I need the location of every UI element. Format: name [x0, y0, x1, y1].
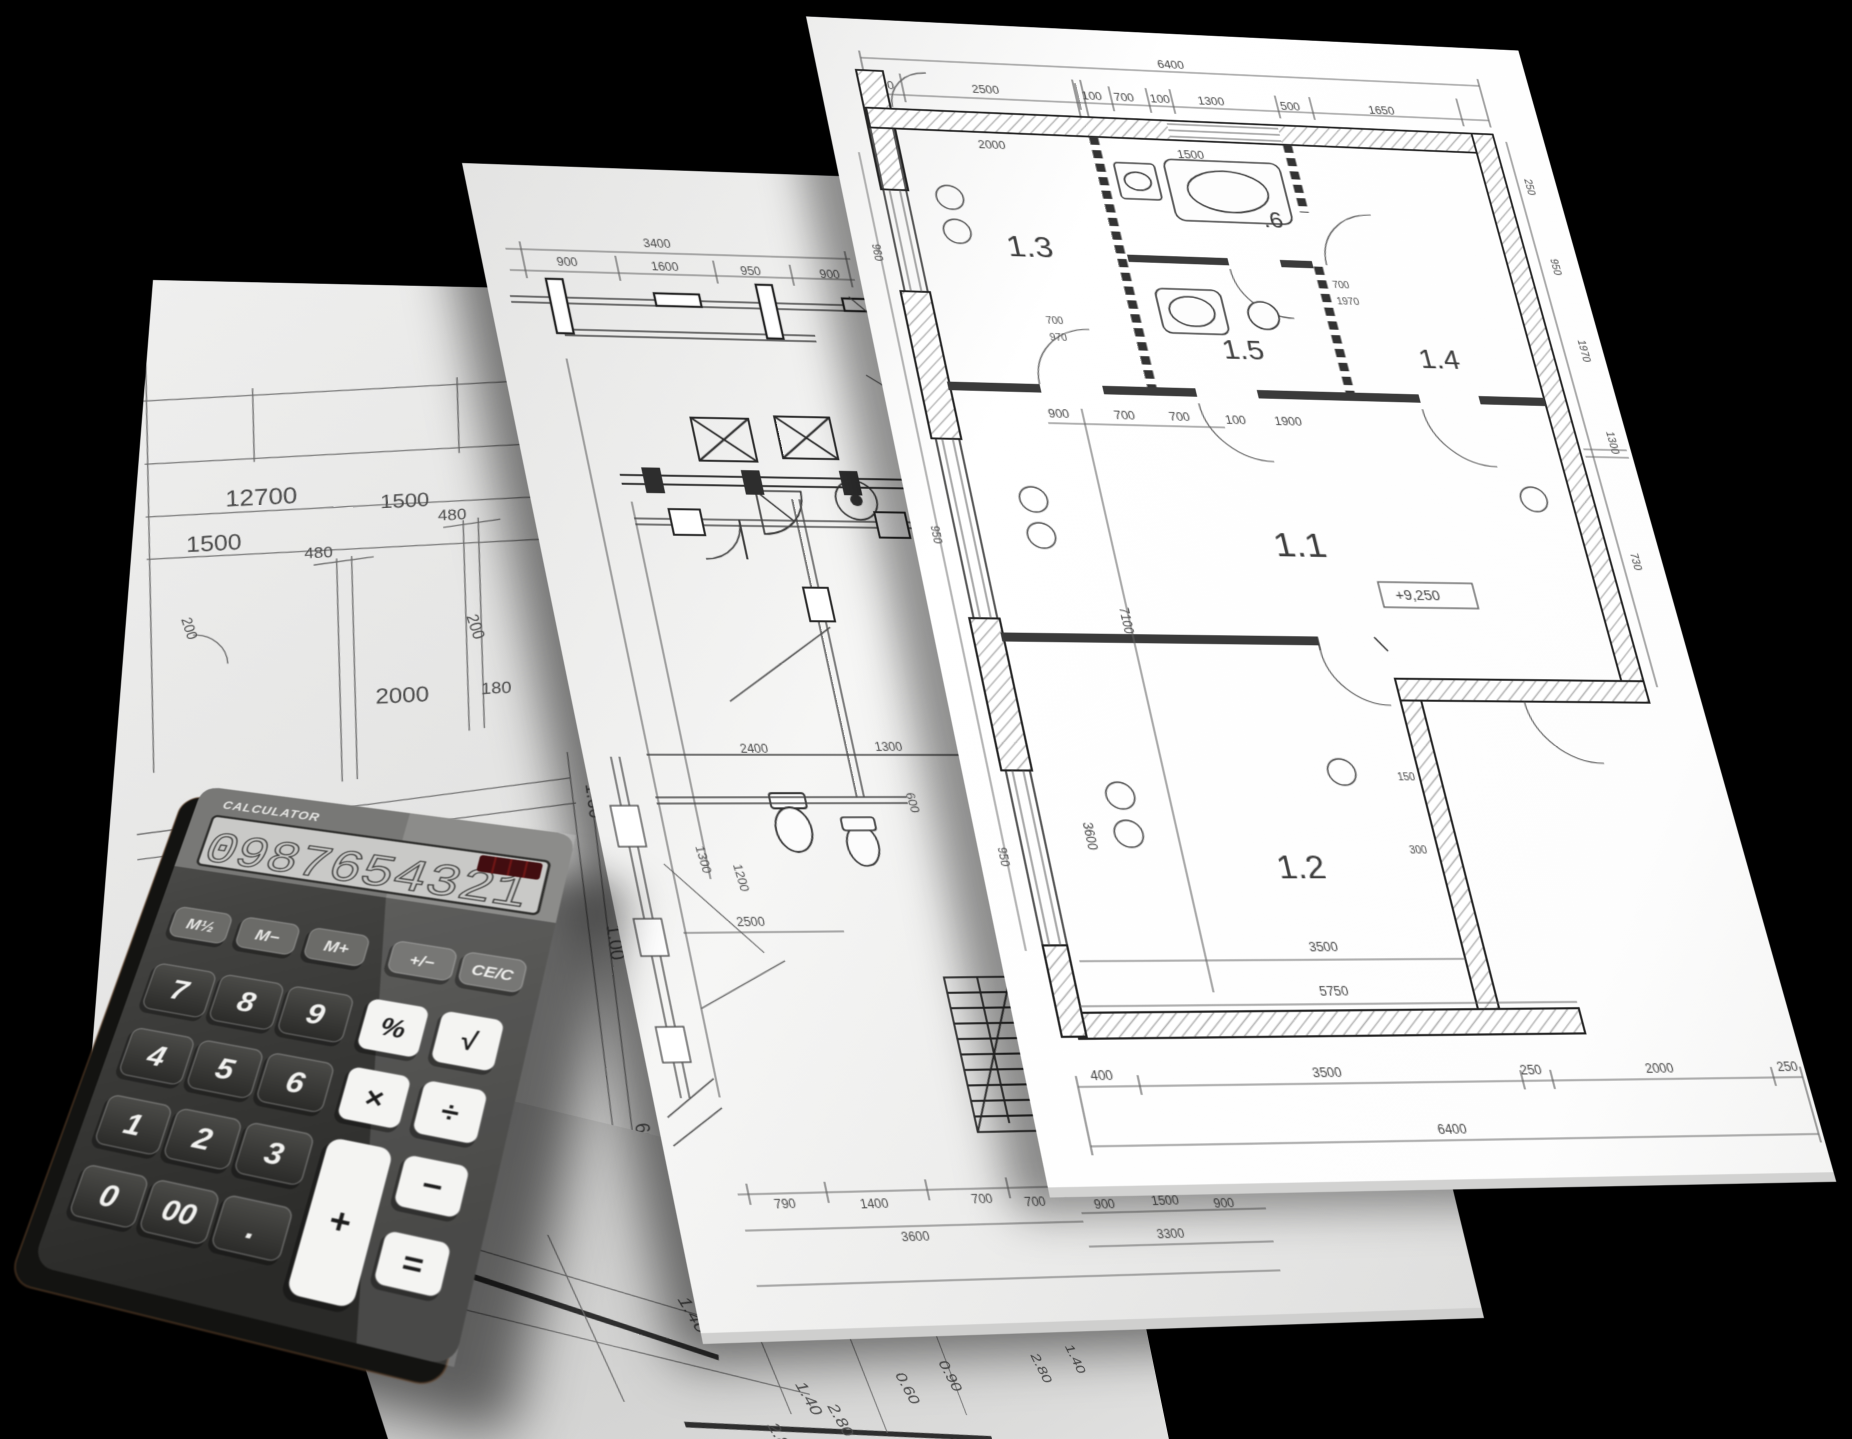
- svg-text:1.1: 1.1: [1269, 525, 1330, 565]
- svg-text:1600: 1600: [650, 260, 680, 274]
- svg-text:5750: 5750: [1318, 984, 1351, 999]
- svg-text:700: 700: [1045, 316, 1065, 327]
- svg-text:400: 400: [1089, 1068, 1115, 1084]
- svg-text:1.5: 1.5: [1219, 335, 1267, 366]
- svg-text:2400: 2400: [739, 742, 770, 756]
- svg-text:1650: 1650: [1367, 104, 1397, 117]
- svg-text:1970: 1970: [1336, 297, 1361, 308]
- svg-text:970: 970: [1049, 333, 1069, 344]
- svg-text:2500: 2500: [735, 915, 766, 929]
- svg-text:2000: 2000: [977, 138, 1008, 152]
- svg-text:1300: 1300: [873, 740, 904, 754]
- svg-text:250: 250: [1775, 1059, 1800, 1074]
- svg-text:480: 480: [438, 507, 467, 525]
- svg-text:1.4: 1.4: [1415, 345, 1463, 376]
- svg-text:700: 700: [1112, 91, 1135, 104]
- svg-text:6400: 6400: [1156, 58, 1186, 72]
- svg-text:1500: 1500: [380, 490, 430, 514]
- svg-text:1500: 1500: [186, 529, 242, 557]
- svg-text:1.3: 1.3: [1003, 229, 1056, 264]
- svg-text:1300: 1300: [1196, 95, 1226, 109]
- svg-text:1400: 1400: [859, 1196, 891, 1211]
- svg-text:500: 500: [1279, 100, 1302, 113]
- svg-text:3400: 3400: [642, 237, 672, 251]
- svg-text:180: 180: [481, 678, 512, 698]
- svg-text:3500: 3500: [1307, 940, 1340, 955]
- svg-text:3600: 3600: [900, 1229, 932, 1244]
- svg-text:1.2: 1.2: [1273, 848, 1330, 886]
- svg-text:100: 100: [1224, 413, 1248, 427]
- svg-text:2000: 2000: [375, 682, 429, 709]
- svg-text:+9,250: +9,250: [1393, 587, 1442, 603]
- svg-text:900: 900: [555, 255, 579, 269]
- svg-text:250: 250: [1518, 1062, 1544, 1077]
- svg-text:700: 700: [970, 1192, 994, 1207]
- svg-text:300: 300: [1408, 845, 1429, 856]
- svg-text:100: 100: [1148, 92, 1171, 105]
- svg-text:150: 150: [1396, 772, 1417, 783]
- svg-text:700: 700: [1332, 281, 1352, 292]
- svg-text:1500: 1500: [1176, 148, 1206, 162]
- svg-text:2500: 2500: [970, 83, 1000, 97]
- svg-text:950: 950: [739, 264, 762, 278]
- svg-text:790: 790: [773, 1197, 798, 1212]
- svg-text:3300: 3300: [1155, 1226, 1186, 1241]
- svg-text:480: 480: [304, 545, 333, 563]
- svg-text:12700: 12700: [225, 483, 298, 512]
- svg-text:6400: 6400: [1436, 1121, 1469, 1137]
- svg-text:700: 700: [1113, 409, 1137, 423]
- svg-text:1900: 1900: [1273, 415, 1304, 429]
- svg-text:3500: 3500: [1311, 1065, 1344, 1081]
- svg-text:900: 900: [1047, 407, 1071, 421]
- svg-text:2000: 2000: [1643, 1061, 1675, 1076]
- svg-text:700: 700: [1168, 410, 1192, 424]
